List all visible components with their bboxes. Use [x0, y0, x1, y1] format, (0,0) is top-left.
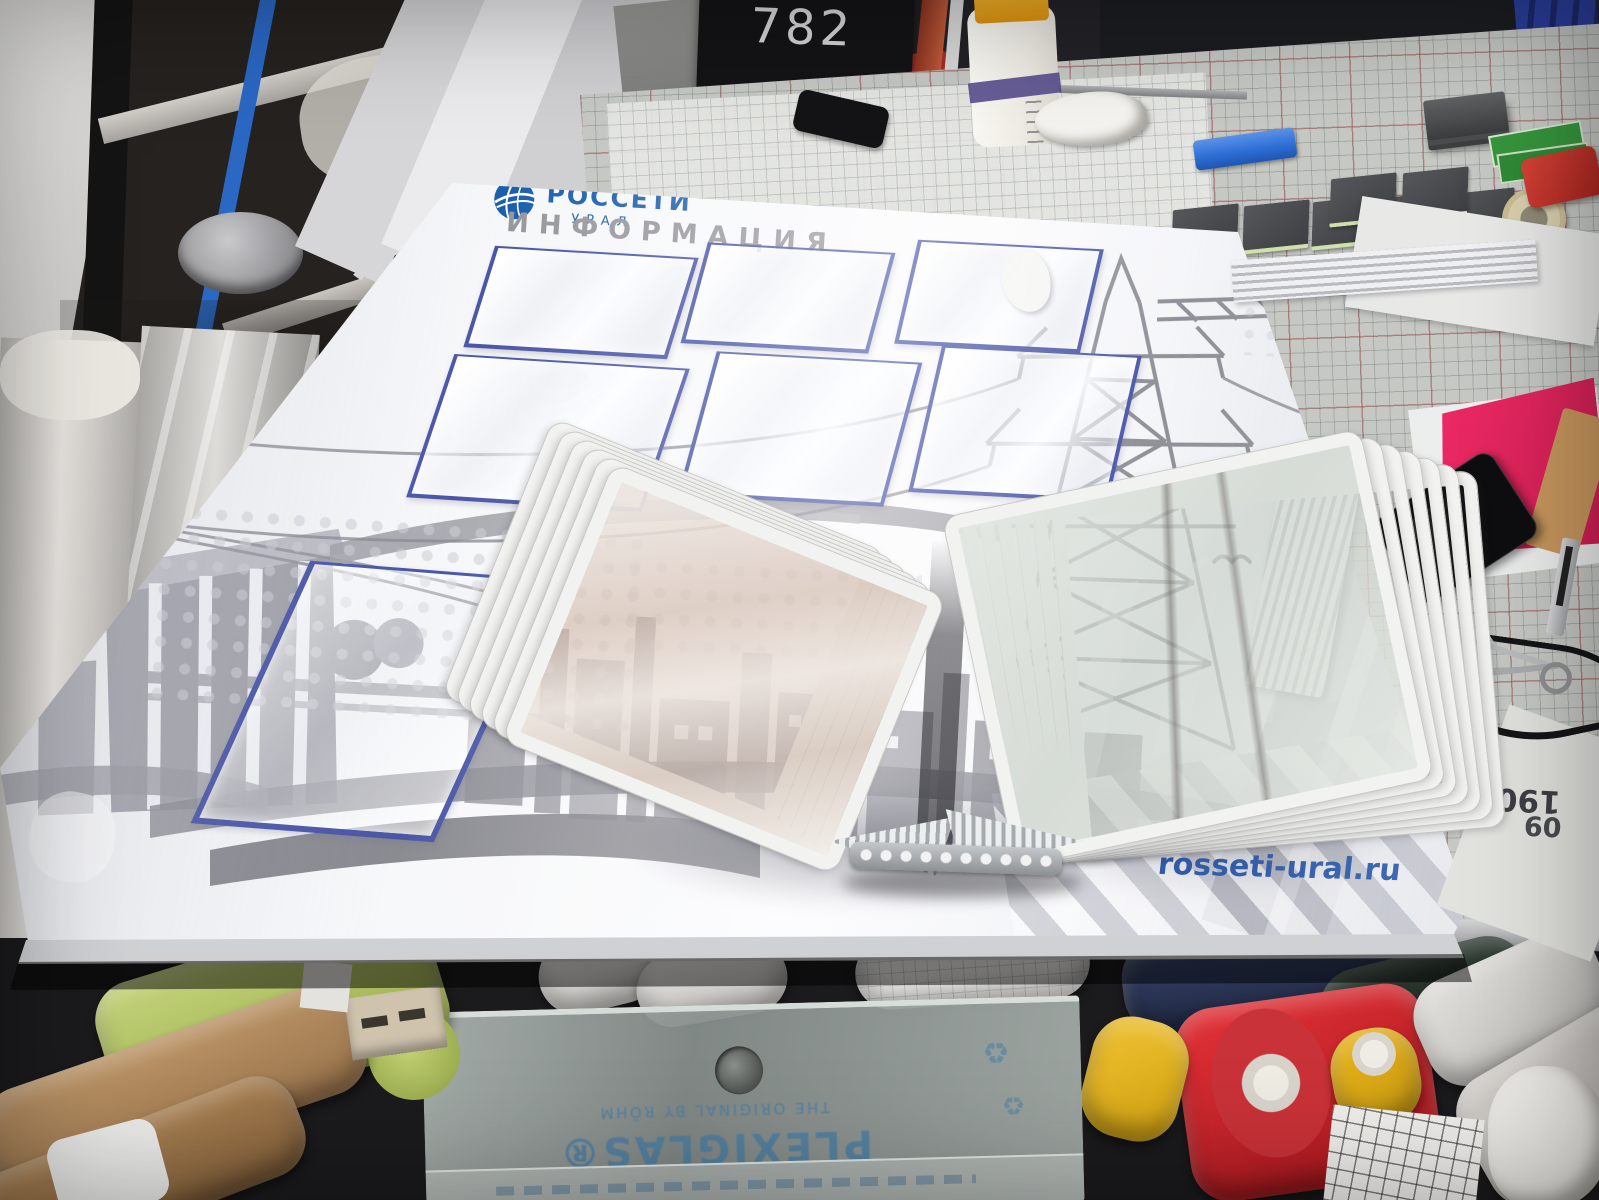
machine-number: 782: [750, 0, 856, 58]
box-slot: [398, 1008, 425, 1022]
photo-stage: 782: [0, 0, 1599, 1200]
scissors-ring: [1540, 662, 1572, 694]
yellow-roll-core: [1352, 1032, 1396, 1076]
adhesive-pad: [1242, 199, 1309, 254]
bottle-cap: [974, 0, 1049, 24]
plexiglas-label: PLEXIGLAS® THE ORIGINAL BY RÖHM: [483, 1045, 946, 1177]
plexiglas-sheet: PLEXIGLAS® THE ORIGINAL BY RÖHM ♻ ♻: [421, 995, 1084, 1200]
mat-number-small: 09: [1523, 809, 1562, 842]
recycle-icon: ♻: [1002, 1089, 1026, 1120]
metal-pot: [178, 212, 303, 294]
crumpled-paper: [1488, 1066, 1599, 1200]
recycle-icon: ♻: [982, 1033, 1010, 1069]
wooden-box: [344, 986, 448, 1061]
grid-fabric: [1323, 1104, 1484, 1200]
roll-top-crumple: [0, 330, 140, 420]
box-slot: [361, 1015, 388, 1029]
workshop-photo: { "scene": { "setting": "Signage worksho…: [0, 0, 1599, 1200]
